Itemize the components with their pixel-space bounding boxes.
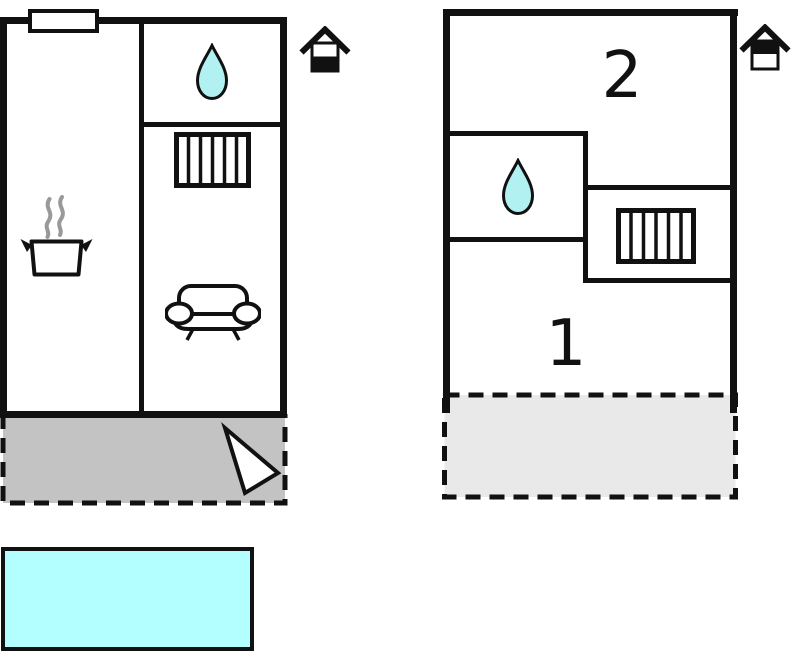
pool-area bbox=[3, 549, 252, 649]
upper-bathroom-top-wall bbox=[450, 131, 588, 136]
swimming-pool bbox=[0, 546, 256, 652]
pot-body bbox=[32, 242, 82, 275]
stairs-icon bbox=[174, 132, 251, 188]
sofa-armrest-right bbox=[234, 304, 260, 324]
cooking-pot-icon bbox=[19, 195, 94, 277]
water-drop-icon bbox=[192, 43, 232, 101]
ground-floor-window bbox=[28, 9, 99, 33]
upper-stair-room-bottom-wall bbox=[588, 278, 730, 283]
house-upper-floor-icon bbox=[739, 24, 791, 74]
ground-floor-terrace bbox=[0, 414, 292, 510]
water-drop-shape bbox=[504, 161, 533, 214]
sofa-armrest-left bbox=[166, 304, 192, 324]
terrace-area bbox=[445, 395, 736, 497]
upper-floor-terrace bbox=[440, 391, 740, 503]
upper-bathroom-right-wall bbox=[583, 131, 588, 283]
upper-floor-top-wall bbox=[443, 9, 738, 16]
upper-stair-room-top-wall bbox=[588, 185, 730, 190]
upper-bathroom-bottom-wall bbox=[450, 237, 583, 242]
house-filled-ground-level bbox=[314, 57, 337, 70]
sofa-icon bbox=[165, 283, 261, 341]
room-label-1: 1 bbox=[536, 312, 596, 376]
ground-floor-interior-wall-vertical bbox=[139, 24, 144, 411]
house-ground-floor-icon bbox=[299, 26, 351, 76]
steam-line bbox=[59, 197, 63, 235]
upper-floor-right-wall bbox=[730, 9, 737, 413]
water-drop-shape bbox=[198, 46, 227, 99]
ground-floor-bathroom-wall bbox=[144, 122, 281, 127]
upper-floor-left-wall bbox=[443, 9, 450, 413]
room-label-2: 2 bbox=[592, 44, 652, 108]
stairs-icon bbox=[616, 208, 696, 264]
house-filled-upper-level bbox=[754, 43, 777, 55]
floor-plan-figure: 2 1 bbox=[0, 0, 797, 652]
water-drop-icon bbox=[498, 158, 538, 216]
steam-line bbox=[47, 199, 51, 237]
